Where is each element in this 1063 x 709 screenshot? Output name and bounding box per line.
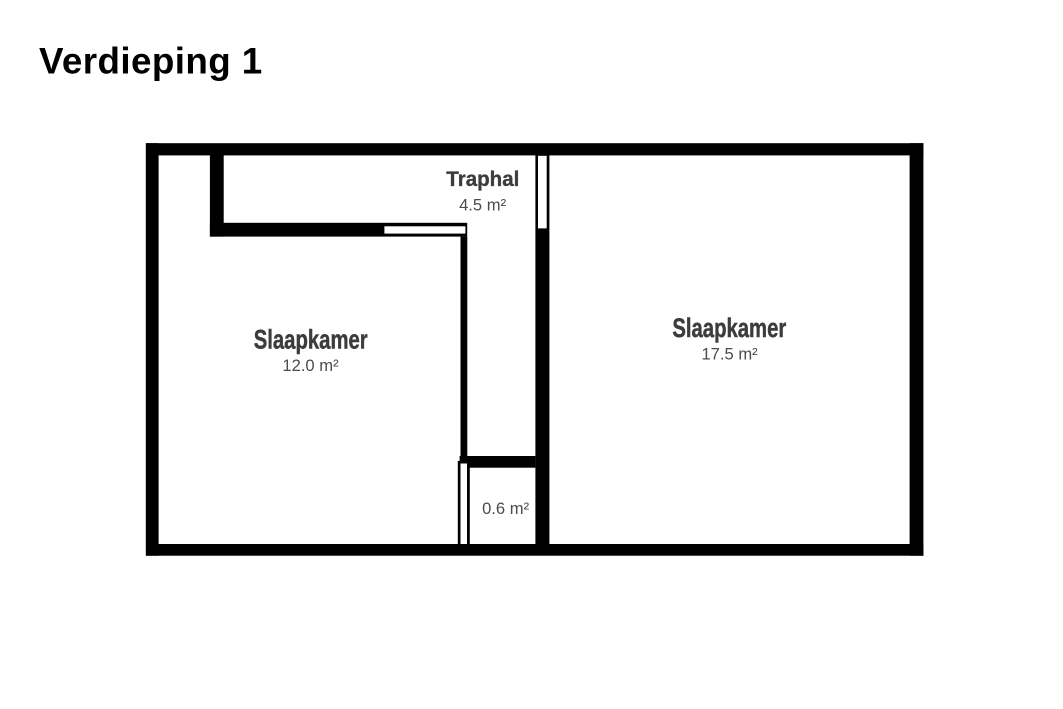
svg-text:4.5 m²: 4.5 m² bbox=[459, 195, 507, 214]
svg-text:Slaapkamer: Slaapkamer bbox=[254, 325, 368, 356]
svg-text:0.6 m²: 0.6 m² bbox=[482, 499, 530, 518]
svg-text:Traphal: Traphal bbox=[446, 168, 519, 191]
svg-text:Slaapkamer: Slaapkamer bbox=[672, 313, 786, 344]
svg-text:17.5 m²: 17.5 m² bbox=[701, 344, 758, 363]
svg-text:Verdieping 1: Verdieping 1 bbox=[39, 41, 263, 82]
svg-text:12.0 m²: 12.0 m² bbox=[282, 356, 339, 375]
